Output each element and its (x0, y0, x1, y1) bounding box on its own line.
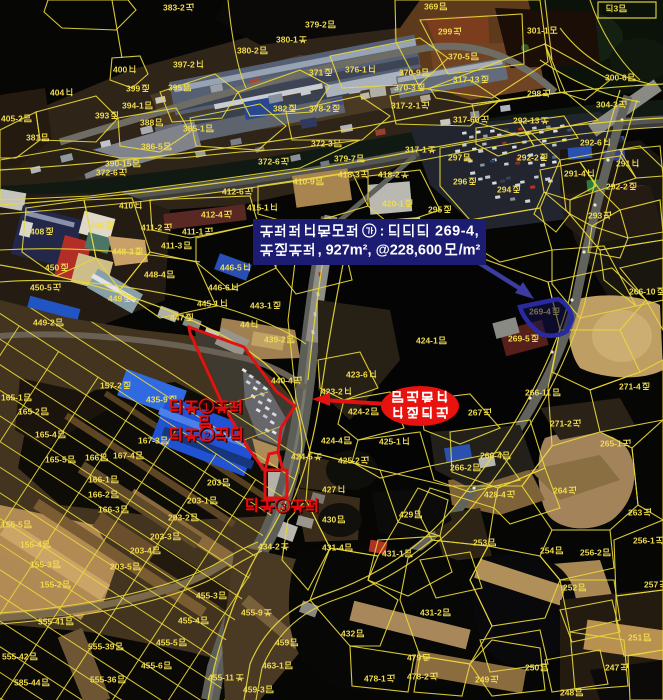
svg-text:167-4: 167-4 (113, 450, 135, 460)
svg-text:266-4: 266-4 (480, 450, 502, 460)
svg-text:155-5: 155-5 (1, 519, 23, 529)
svg-text:369: 369 (424, 1, 438, 11)
svg-text:423-6: 423-6 (346, 369, 368, 379)
svg-text:430: 430 (322, 514, 336, 524)
svg-text:266-11: 266-11 (525, 387, 551, 397)
svg-text:3: 3 (279, 501, 285, 513)
svg-text:412-6: 412-6 (222, 186, 244, 196)
svg-text:267: 267 (468, 407, 482, 417)
svg-text:292-13: 292-13 (513, 115, 540, 125)
svg-text:203-4: 203-4 (130, 545, 152, 555)
svg-text:411-2: 411-2 (141, 222, 163, 232)
svg-text:455-6: 455-6 (141, 660, 163, 670)
svg-text:435-9: 435-9 (146, 394, 168, 404)
svg-text:408: 408 (30, 226, 44, 236)
svg-text:271-2: 271-2 (550, 418, 572, 428)
svg-text:257: 257 (644, 579, 658, 589)
svg-text:459: 459 (275, 637, 289, 647)
svg-text:266-2: 266-2 (450, 462, 472, 472)
svg-text:434-2: 434-2 (258, 541, 280, 551)
svg-text:166-3: 166-3 (98, 504, 120, 514)
svg-text:585-44: 585-44 (14, 677, 41, 687)
svg-text:432: 432 (341, 628, 355, 638)
svg-text:254: 254 (540, 545, 554, 555)
svg-text:253: 253 (473, 537, 487, 547)
svg-text:265-1: 265-1 (600, 438, 622, 448)
svg-text:252: 252 (563, 582, 577, 592)
svg-text:291: 291 (616, 158, 630, 168)
svg-text:370-3: 370-3 (394, 82, 416, 92)
svg-text:300-6: 300-6 (605, 72, 627, 82)
svg-text:44: 44 (240, 319, 250, 329)
svg-text:371: 371 (309, 67, 323, 77)
svg-text:166: 166 (85, 452, 99, 462)
svg-text:3: 3 (614, 3, 619, 13)
svg-text:448-4: 448-4 (144, 269, 166, 279)
svg-text:294: 294 (497, 184, 511, 194)
svg-text:404: 404 (50, 87, 64, 97)
svg-text:203-5: 203-5 (110, 561, 132, 571)
svg-text:447: 447 (170, 312, 184, 322)
svg-text:424-4: 424-4 (321, 435, 343, 445)
svg-text:292-2: 292-2 (517, 152, 539, 162)
svg-text:166-2: 166-2 (88, 489, 110, 499)
svg-text:446-6: 446-6 (208, 282, 230, 292)
svg-text:555-36: 555-36 (90, 674, 117, 684)
svg-text:424-1: 424-1 (416, 335, 438, 345)
svg-text:292-2: 292-2 (606, 181, 628, 191)
svg-text:455-3: 455-3 (196, 590, 218, 600)
svg-text:256-1: 256-1 (633, 535, 655, 545)
svg-text:463-1: 463-1 (262, 660, 284, 670)
svg-text:385-1: 385-1 (183, 123, 205, 133)
svg-text:372-6: 372-6 (258, 156, 280, 166)
svg-text:418-3: 418-3 (338, 169, 360, 179)
svg-text:455-5: 455-5 (156, 637, 178, 647)
svg-text:479: 479 (407, 652, 421, 662)
svg-text:269-4,: 269-4, (435, 224, 479, 240)
svg-text:399: 399 (126, 83, 140, 93)
svg-text:386-5: 386-5 (141, 141, 163, 151)
svg-text:428-4: 428-4 (484, 489, 506, 499)
svg-text:155-2: 155-2 (40, 579, 62, 589)
svg-text:388: 388 (140, 117, 154, 127)
svg-text:266-10: 266-10 (629, 286, 656, 296)
svg-text:425-2: 425-2 (338, 455, 360, 465)
svg-text:380-1: 380-1 (276, 34, 298, 44)
svg-text:256-2: 256-2 (580, 547, 602, 557)
svg-text:203-2: 203-2 (168, 512, 190, 522)
svg-text:166-1: 166-1 (88, 474, 110, 484)
svg-text:411-1: 411-1 (182, 226, 204, 236)
svg-text:440-4: 440-4 (271, 375, 293, 385)
svg-text:449: 449 (108, 293, 122, 303)
svg-text:376-1: 376-1 (345, 64, 367, 74)
svg-text:555-42: 555-42 (2, 651, 29, 661)
svg-text:381: 381 (26, 132, 40, 142)
svg-text:443-1: 443-1 (250, 300, 272, 310)
svg-text:478-2: 478-2 (407, 671, 429, 681)
svg-text:418-2: 418-2 (378, 169, 400, 179)
svg-text:393: 393 (95, 110, 109, 120)
svg-text:,: , (318, 243, 322, 259)
svg-text::: : (380, 224, 385, 239)
svg-text:397-2: 397-2 (173, 59, 195, 69)
svg-text:379-2: 379-2 (305, 19, 327, 29)
svg-text:411-3: 411-3 (161, 240, 183, 250)
svg-text:165-5: 165-5 (45, 454, 67, 464)
svg-text:264: 264 (553, 485, 567, 495)
svg-text:427: 427 (322, 484, 336, 494)
svg-text:317-2-1: 317-2-1 (391, 100, 421, 110)
svg-text:555-41: 555-41 (38, 616, 65, 626)
svg-text:1: 1 (203, 402, 209, 414)
svg-text:203-1: 203-1 (187, 495, 209, 505)
svg-text:293: 293 (588, 210, 602, 220)
svg-text:317-13: 317-13 (453, 74, 480, 84)
svg-text:408: 408 (90, 220, 104, 230)
svg-text:291-4: 291-4 (564, 168, 586, 178)
svg-text:415-1: 415-1 (247, 202, 269, 212)
svg-text:250: 250 (525, 662, 539, 672)
svg-text:429: 429 (399, 509, 413, 519)
svg-text:424-5: 424-5 (291, 451, 313, 461)
svg-text:425-1: 425-1 (379, 436, 401, 446)
svg-text:299: 299 (438, 26, 452, 36)
svg-text:370-5: 370-5 (448, 51, 470, 61)
svg-text:424-2: 424-2 (348, 406, 370, 416)
svg-text:157-2: 157-2 (100, 380, 122, 390)
svg-text:203-3: 203-3 (150, 531, 172, 541)
svg-text:292-6: 292-6 (580, 137, 602, 147)
svg-text:167-3: 167-3 (138, 435, 160, 445)
svg-text:478-1: 478-1 (364, 673, 386, 683)
svg-text:927m², @228,600: 927m², @228,600 (326, 243, 443, 259)
svg-text:263: 263 (628, 507, 642, 517)
svg-text:379-7: 379-7 (334, 153, 356, 163)
svg-text:400: 400 (113, 64, 127, 74)
svg-text:165-4: 165-4 (35, 429, 57, 439)
svg-text:423-2: 423-2 (321, 386, 343, 396)
svg-text:420-1: 420-1 (382, 198, 404, 208)
svg-text:555-39: 555-39 (88, 641, 115, 651)
svg-text:271-4: 271-4 (619, 381, 641, 391)
svg-text:383-2: 383-2 (163, 2, 185, 12)
svg-text:297: 297 (448, 152, 462, 162)
svg-text:372-3: 372-3 (311, 138, 333, 148)
svg-text:165-2: 165-2 (18, 406, 40, 416)
svg-text:301-1: 301-1 (527, 25, 549, 35)
svg-text:405-2: 405-2 (1, 113, 23, 123)
svg-text:395: 395 (168, 82, 182, 92)
svg-text:431-2: 431-2 (420, 607, 442, 617)
svg-text:155-3: 155-3 (30, 559, 52, 569)
svg-text:378-2: 378-2 (309, 103, 331, 113)
svg-text:410: 410 (119, 200, 133, 210)
svg-text:450: 450 (45, 262, 59, 272)
svg-text:203: 203 (207, 477, 221, 487)
svg-text:165-1: 165-1 (1, 392, 23, 402)
svg-text:439-2: 439-2 (264, 334, 286, 344)
svg-text:304-3: 304-3 (596, 99, 618, 109)
svg-text:317-60: 317-60 (453, 114, 480, 124)
svg-text:449-2: 449-2 (33, 317, 55, 327)
svg-text:248: 248 (560, 687, 574, 697)
svg-text:412-4: 412-4 (201, 209, 223, 219)
svg-text:370-9: 370-9 (399, 67, 421, 77)
svg-text:410-9: 410-9 (293, 176, 315, 186)
svg-text:/m²: /m² (459, 243, 481, 259)
svg-text:251: 251 (628, 632, 642, 642)
svg-text:459-3: 459-3 (243, 684, 265, 694)
svg-text:455-9: 455-9 (241, 607, 263, 617)
svg-text:249: 249 (475, 674, 489, 684)
svg-text:394-1: 394-1 (122, 100, 144, 110)
svg-text:445-1: 445-1 (197, 298, 219, 308)
svg-text:382: 382 (273, 103, 287, 113)
svg-text:2: 2 (203, 430, 209, 442)
svg-text:295: 295 (428, 204, 442, 214)
svg-text:269-5: 269-5 (508, 333, 530, 343)
svg-text:296: 296 (453, 176, 467, 186)
svg-text:431-4: 431-4 (322, 542, 344, 552)
svg-text:380-2: 380-2 (237, 45, 259, 55)
svg-text:450-5: 450-5 (30, 282, 52, 292)
svg-text:317-1: 317-1 (405, 144, 427, 154)
svg-text:448-3: 448-3 (112, 246, 134, 256)
svg-text:455-4: 455-4 (178, 615, 200, 625)
svg-text:155-4: 155-4 (20, 539, 42, 549)
svg-text:446-5: 446-5 (220, 262, 242, 272)
svg-text:247: 247 (605, 662, 619, 672)
svg-text:431-1: 431-1 (382, 548, 404, 558)
svg-text:372-6: 372-6 (96, 167, 118, 177)
svg-text:298: 298 (527, 88, 541, 98)
svg-text:455-11: 455-11 (208, 672, 234, 682)
